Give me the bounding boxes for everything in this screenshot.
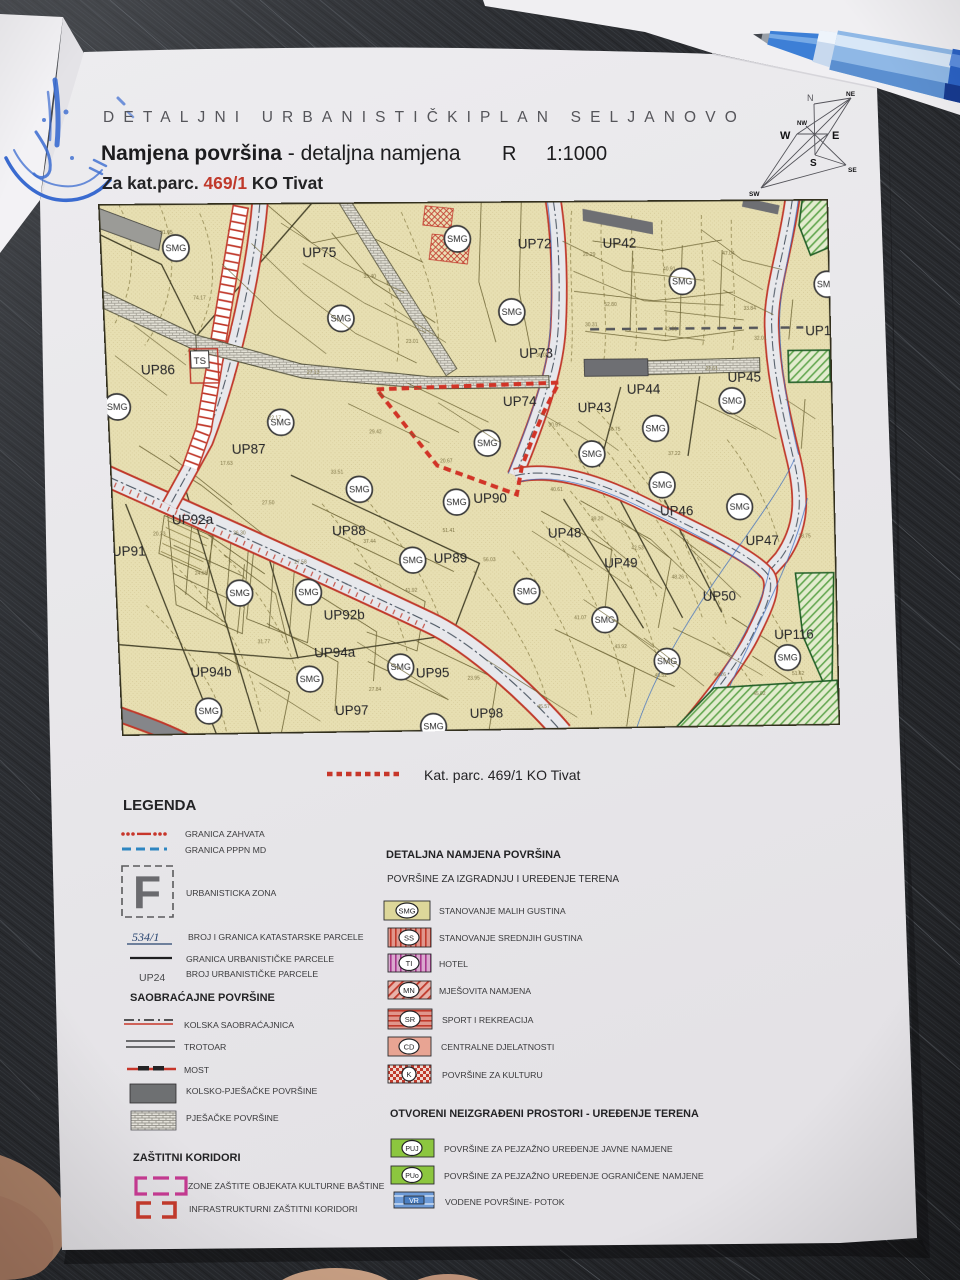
- svg-text:PUo: PUo: [405, 1173, 419, 1180]
- svg-text:CENTRALNE DJELATNOSTI: CENTRALNE DJELATNOSTI: [441, 1042, 554, 1052]
- svg-text:INFRASTRUKTURNI ZAŠTITNI KORID: INFRASTRUKTURNI ZAŠTITNI KORIDORI: [189, 1204, 357, 1214]
- svg-text:TROTOAR: TROTOAR: [184, 1042, 226, 1052]
- svg-text:UP24: UP24: [139, 972, 165, 984]
- svg-text:Kat. parc. 469/1 KO Tivat: Kat. parc. 469/1 KO Tivat: [424, 767, 581, 783]
- svg-text:MJEŠOVITA NAMJENA: MJEŠOVITA NAMJENA: [439, 986, 531, 996]
- svg-text:GRANICA ZAHVATA: GRANICA ZAHVATA: [185, 829, 265, 839]
- svg-text:SMG: SMG: [398, 907, 415, 916]
- svg-text:KOLSKA SAOBRAĆAJNICA: KOLSKA SAOBRAĆAJNICA: [184, 1020, 294, 1030]
- svg-text:PUJ: PUJ: [405, 1146, 418, 1153]
- svg-text:GRANICA URBANISTIČKE PARCELE: GRANICA URBANISTIČKE PARCELE: [186, 954, 334, 964]
- svg-text:TI: TI: [406, 959, 413, 968]
- svg-text:STANOVANJE SREDNJIH GUSTINA: STANOVANJE SREDNJIH GUSTINA: [439, 933, 583, 943]
- svg-text:POVRŠINE ZA IZGRADNJU I UREĐEN: POVRŠINE ZA IZGRADNJU I UREĐENJE TERENA: [387, 872, 619, 885]
- svg-text:PJEŠAČKE POVRŠINE: PJEŠAČKE POVRŠINE: [186, 1113, 279, 1123]
- svg-text:SAOBRAĆAJNE POVRŠINE: SAOBRAĆAJNE POVRŠINE: [130, 991, 275, 1004]
- svg-text:K: K: [406, 1070, 411, 1079]
- svg-text:BROJ URBANISTIČKE PARCELE: BROJ URBANISTIČKE PARCELE: [186, 969, 318, 979]
- svg-text:CD: CD: [404, 1043, 415, 1052]
- svg-text:STANOVANJE MALIH GUSTINA: STANOVANJE MALIH GUSTINA: [439, 906, 566, 916]
- svg-text:VR: VR: [409, 1198, 419, 1205]
- svg-text:HOTEL: HOTEL: [439, 959, 468, 969]
- svg-text:KOLSKO-PJEŠAČKE POVRŠINE: KOLSKO-PJEŠAČKE POVRŠINE: [186, 1086, 318, 1096]
- svg-text:DETALJNA NAMJENA POVRŠINA: DETALJNA NAMJENA POVRŠINA: [386, 848, 561, 861]
- svg-text:OTVORENI NEIZGRAĐENI PROSTORI: OTVORENI NEIZGRAĐENI PROSTORI - UREĐENJE…: [390, 1108, 699, 1120]
- svg-text:F: F: [133, 866, 161, 918]
- svg-text:ZAŠTITNI KORIDORI: ZAŠTITNI KORIDORI: [133, 1151, 241, 1164]
- svg-text:GRANICA PPPN MD: GRANICA PPPN MD: [185, 845, 266, 855]
- svg-text:LEGENDA: LEGENDA: [123, 797, 197, 814]
- svg-text:MOST: MOST: [184, 1065, 210, 1075]
- svg-text:534/1: 534/1: [132, 930, 159, 944]
- svg-text:SS: SS: [404, 934, 414, 943]
- svg-text:POVRŠINE ZA PEJZAŽNO UREĐENJE: POVRŠINE ZA PEJZAŽNO UREĐENJE JAVNE NAMJ…: [444, 1144, 673, 1154]
- svg-text:POVRŠINE ZA KULTURU: POVRŠINE ZA KULTURU: [442, 1070, 543, 1080]
- svg-text:POVRŠINE ZA PEJZAŽNO UREĐENJE: POVRŠINE ZA PEJZAŽNO UREĐENJE OGRANIČENE…: [444, 1171, 704, 1181]
- svg-text:SR: SR: [405, 1015, 416, 1024]
- svg-text:URBANISTICKA ZONA: URBANISTICKA ZONA: [186, 888, 276, 898]
- svg-text:VODENE POVRŠINE- POTOK: VODENE POVRŠINE- POTOK: [445, 1197, 565, 1207]
- svg-text:ZONE ZAŠTITE OBJEKATA KULTURNE: ZONE ZAŠTITE OBJEKATA KULTURNE BAŠTINE: [188, 1181, 385, 1191]
- svg-text:MN: MN: [403, 986, 415, 995]
- svg-text:BROJ I GRANICA KATASTARSKE PAR: BROJ I GRANICA KATASTARSKE PARCELE: [188, 932, 364, 942]
- svg-text:SPORT I REKREACIJA: SPORT I REKREACIJA: [442, 1015, 534, 1025]
